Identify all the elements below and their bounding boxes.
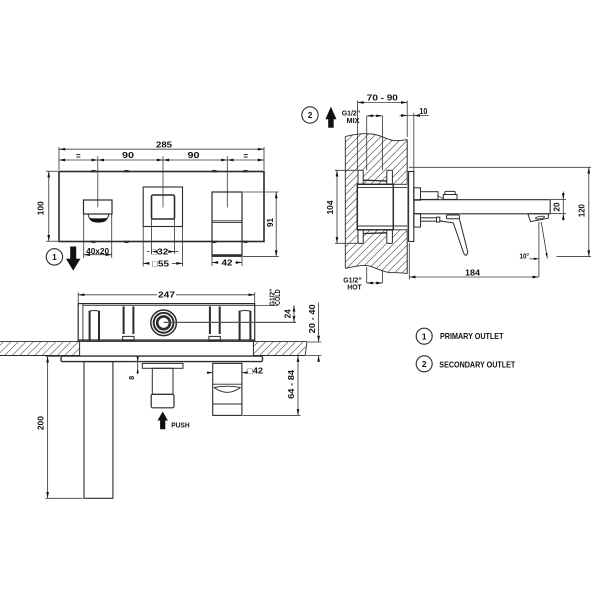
svg-text:PRIMARY OUTLET: PRIMARY OUTLET (440, 332, 504, 341)
svg-text:100: 100 (36, 201, 46, 215)
svg-text:10°: 10° (520, 252, 530, 261)
svg-text:70 - 90: 70 - 90 (367, 94, 399, 103)
svg-text:90: 90 (122, 150, 134, 160)
svg-text:2: 2 (308, 110, 313, 120)
svg-text:20: 20 (552, 202, 561, 212)
svg-text:64 - 84: 64 - 84 (287, 369, 296, 399)
svg-text:COLD: COLD (275, 289, 282, 305)
svg-text:104: 104 (325, 200, 335, 214)
svg-text:MIX: MIX (347, 116, 360, 125)
svg-text:10: 10 (419, 107, 427, 116)
svg-text:40x20: 40x20 (86, 247, 110, 256)
svg-text:184: 184 (465, 269, 481, 278)
svg-text:247: 247 (158, 291, 176, 300)
svg-text:90: 90 (188, 150, 200, 160)
svg-text:HOT: HOT (347, 282, 362, 291)
svg-text:200: 200 (36, 416, 46, 430)
svg-text:20 - 40: 20 - 40 (308, 304, 317, 334)
svg-text:SECONDARY OUTLET: SECONDARY OUTLET (439, 361, 515, 370)
svg-text:285: 285 (156, 139, 172, 149)
svg-text:24: 24 (283, 309, 292, 319)
svg-text:120: 120 (577, 204, 587, 217)
svg-text:1: 1 (52, 252, 57, 262)
svg-text:91: 91 (265, 218, 275, 227)
svg-text:42: 42 (222, 258, 234, 267)
svg-text:8: 8 (129, 376, 136, 380)
svg-text:□55: □55 (152, 259, 170, 268)
svg-text:1: 1 (422, 331, 427, 341)
svg-text:2: 2 (422, 359, 427, 369)
svg-text:□42: □42 (247, 366, 263, 375)
svg-text:PUSH: PUSH (171, 421, 190, 430)
svg-text:□32: □32 (151, 248, 169, 257)
